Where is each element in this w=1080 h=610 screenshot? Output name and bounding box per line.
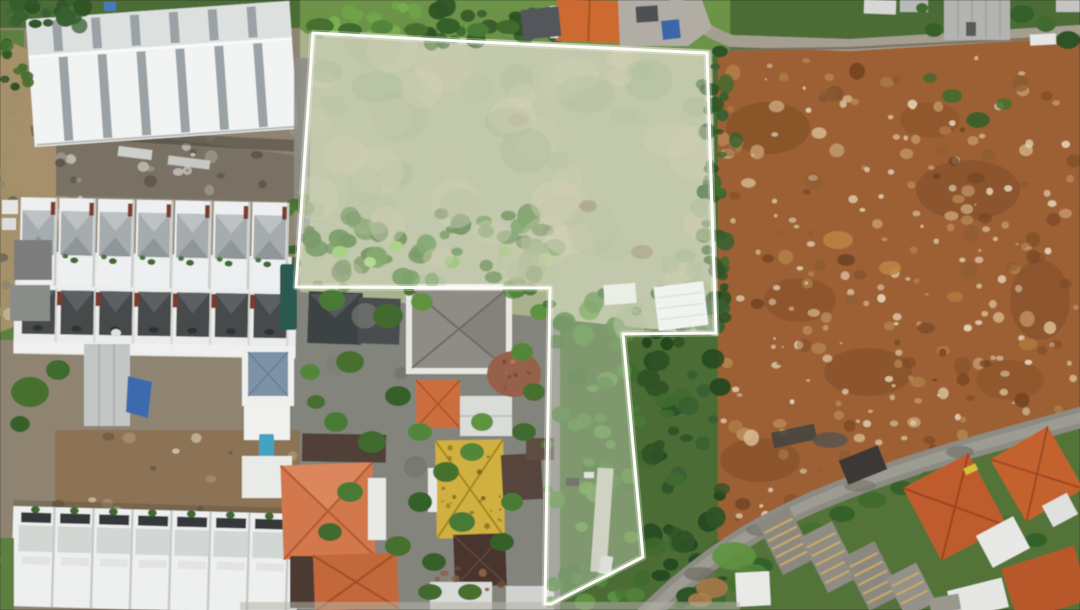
- yellow-roof-speckle: [446, 503, 451, 508]
- dirt-texture-pale: [1018, 71, 1025, 75]
- dirt-texture-pale: [751, 154, 754, 157]
- yellow-roof-speckle: [499, 495, 501, 497]
- trees-strip: [625, 588, 645, 601]
- townhouse-row-bottom: [96, 527, 131, 554]
- village-trees: [358, 431, 386, 453]
- grass-blobs-north: [410, 8, 421, 19]
- dirt-texture-pale: [782, 346, 784, 348]
- dirt-texture-dark: [902, 357, 916, 368]
- trees-east-of-parcel: [720, 283, 729, 291]
- dirt-texture-dark: [1026, 232, 1040, 248]
- dirt-texture-light: [803, 326, 813, 335]
- satellite-dish: [111, 329, 121, 337]
- lane-texture: [404, 456, 427, 478]
- construction-debris: [251, 151, 263, 159]
- townhouse-row-bottom: [174, 530, 209, 557]
- village-trees: [512, 423, 536, 441]
- dirt-texture-dark: [933, 173, 940, 179]
- dirt-texture-pale: [1062, 141, 1070, 148]
- yellow-roof-speckle: [490, 510, 492, 512]
- village-trees: [418, 584, 442, 600]
- dirt-texture-dark: [1006, 261, 1018, 271]
- yard-debris: [229, 451, 233, 454]
- townhouse-row-bottom: [100, 558, 128, 567]
- dirt-texture-dark: [1059, 279, 1071, 289]
- townhouse-row-bottom: [138, 516, 168, 527]
- dirt-texture-dark: [982, 149, 996, 160]
- dirt-texture-light: [960, 417, 966, 423]
- courtyard-texture: [503, 386, 506, 388]
- dirt-texture-light: [914, 278, 919, 283]
- dirt-weed-tufts: [718, 74, 734, 94]
- dirt-texture-light: [872, 219, 883, 228]
- rust-debris: [497, 581, 505, 588]
- construction-debris: [144, 175, 157, 187]
- dirt-texture-light: [823, 325, 829, 331]
- dirt-texture-dark: [959, 127, 965, 132]
- dirt-texture-light: [993, 237, 998, 241]
- dirt-texture-dark: [932, 378, 937, 381]
- gray-roof-west: [10, 285, 50, 321]
- townhouse-row-lower: [57, 291, 62, 305]
- dirt-texture-dark: [892, 75, 902, 84]
- dirt-texture-pale: [730, 218, 735, 224]
- dirt-texture-dark: [778, 230, 784, 236]
- dirt-texture-pale: [1044, 190, 1051, 197]
- dirt-texture-pale: [906, 277, 911, 280]
- rust-debris: [485, 588, 490, 591]
- dirt-texture-light: [894, 360, 902, 369]
- trees-southeast-block: [663, 558, 678, 570]
- mud-pools: [947, 292, 963, 302]
- dirt-texture-light: [741, 178, 756, 187]
- townhouse-row-bottom: [178, 561, 206, 570]
- dirt-texture-pale: [955, 414, 961, 420]
- townhouse-row-bottom: [61, 557, 89, 566]
- yellow-roof-speckle: [499, 509, 502, 511]
- yellow-roof-speckle: [441, 501, 443, 503]
- dirt-texture-pale: [996, 356, 1003, 361]
- yellow-roof-speckle: [447, 445, 452, 450]
- aerial-photo-stage: [0, 0, 1080, 610]
- dirt-texture-pale: [910, 106, 915, 110]
- left-trees: [10, 416, 30, 432]
- dirt-texture-dark: [949, 157, 960, 166]
- yellow-roof-speckle: [500, 520, 502, 522]
- dirt-texture-light: [914, 398, 922, 404]
- dirt-texture-light: [892, 384, 896, 387]
- townhouse-row-bottom: [21, 512, 51, 523]
- townhouse-row-upper-1: [58, 198, 97, 287]
- dirt-texture-pale: [964, 325, 972, 331]
- dirt-texture-light: [928, 165, 934, 170]
- dirt-texture-dark: [729, 191, 740, 199]
- townhouse-row-upper-4: [173, 200, 212, 289]
- dirt-texture-dark: [820, 88, 838, 102]
- dirt-weed-tufts: [729, 132, 743, 148]
- white-building-south: [735, 571, 771, 607]
- trees-north-of-parcel: [461, 10, 476, 22]
- townhouse-row-bottom: [99, 514, 129, 525]
- white-annex: [368, 478, 386, 540]
- yard-debris: [191, 433, 201, 443]
- dirt-texture-pale: [797, 266, 804, 270]
- small-shed-west: [2, 218, 16, 230]
- dirt-texture-dark: [939, 348, 947, 356]
- yellow-roof-speckle: [447, 456, 452, 461]
- photo-scene: [0, 0, 1080, 610]
- dirt-texture-pale: [807, 241, 815, 247]
- dirt-texture-light: [900, 149, 913, 159]
- dirt-texture-pale: [1067, 361, 1072, 366]
- dirt-texture-light: [802, 58, 810, 63]
- yard-debris: [102, 432, 114, 441]
- village-trees: [411, 293, 433, 311]
- dirt-texture-pale: [848, 195, 857, 203]
- dirt-texture-pale: [864, 167, 869, 172]
- dirt-texture-light: [1069, 375, 1076, 382]
- townhouse-row-upper: [282, 207, 287, 220]
- dirt-texture-pale: [856, 420, 860, 423]
- trees-southeast-block: [678, 397, 699, 416]
- village-trees: [408, 423, 432, 441]
- dirt-texture-pale: [868, 410, 873, 413]
- dirt-texture-pale: [885, 376, 893, 382]
- village-trees: [433, 462, 459, 482]
- village-trees: [422, 553, 446, 571]
- lane-texture: [394, 367, 408, 380]
- dirt-texture-light: [882, 238, 888, 242]
- dirt-texture-pale: [893, 313, 902, 320]
- trees-southeast-block: [673, 337, 684, 348]
- trees-southeast-block: [636, 369, 660, 388]
- small-roof-northeast: [1056, 0, 1080, 12]
- townhouse-row-upper: [166, 204, 171, 217]
- dirt-texture-dark: [757, 503, 761, 506]
- townhouse-row-lower: [134, 293, 139, 307]
- small-roof-north: [864, 0, 896, 15]
- debris-on-dirt: [812, 432, 848, 448]
- townhouse-row-bottom: [216, 518, 246, 529]
- trees-east-of-parcel: [716, 232, 735, 251]
- trees-southeast-block: [706, 507, 726, 529]
- townhouse-row-upper-5: [212, 201, 251, 290]
- dirt-texture-dark: [957, 373, 970, 386]
- dirt-texture-pale: [765, 79, 767, 81]
- construction-debris: [259, 180, 267, 188]
- dirt-texture-dark: [1015, 393, 1030, 408]
- construction-debris: [185, 169, 190, 173]
- townhouse-row-bottom: [252, 532, 287, 559]
- dirt-texture-dark: [1019, 181, 1029, 188]
- dirt-texture-dark: [1016, 240, 1027, 249]
- dirt-texture-light: [976, 284, 982, 289]
- trees-northwest-corner: [29, 19, 42, 28]
- hedge-north-boundary: [467, 23, 489, 37]
- dirt-texture-dark: [854, 270, 867, 280]
- dirt-texture-pale: [773, 337, 775, 339]
- dirt-texture-dark: [749, 480, 756, 485]
- rust-debris: [452, 575, 460, 582]
- dirt-texture-pale: [1015, 285, 1022, 292]
- dirt-texture-pale: [975, 257, 984, 263]
- dirt-texture-light: [728, 106, 734, 112]
- townhouse-row-bottom: [217, 562, 245, 571]
- dirt-texture-dark: [803, 189, 811, 194]
- dirt-texture-pale: [772, 199, 777, 204]
- dirt-texture-light: [808, 271, 814, 276]
- dirt-texture-pale: [974, 204, 976, 206]
- dirt-texture-light: [812, 127, 827, 138]
- yard-debris: [172, 448, 179, 453]
- dirt-texture-pale: [800, 469, 807, 474]
- dirt-texture-pale: [990, 356, 995, 360]
- trees-southeast-block: [697, 384, 711, 397]
- trees-southeast-block: [659, 409, 674, 418]
- trees-east-of-parcel: [712, 46, 728, 57]
- dirt-texture-pale: [721, 419, 727, 424]
- dirt-texture-dark: [924, 436, 936, 444]
- trees-southeast-block: [642, 443, 665, 465]
- southwest-grass: [0, 538, 14, 610]
- dirt-weed-tufts: [966, 112, 990, 128]
- dirt-texture-light: [778, 449, 788, 460]
- construction-debris: [138, 162, 149, 172]
- dirt-texture-pale: [998, 275, 1006, 283]
- dirt-texture-dark: [960, 263, 978, 280]
- dirt-texture-dark: [1041, 91, 1053, 101]
- trees-strip: [634, 570, 650, 587]
- mud-pools: [823, 231, 853, 249]
- dirt-texture-pale: [959, 258, 965, 262]
- townhouse-row-bottom: [135, 528, 170, 555]
- yard-debris: [123, 433, 136, 444]
- hedge-north-boundary: [371, 20, 393, 34]
- trees-southeast-block: [648, 350, 670, 371]
- dirt-texture-pale: [1025, 360, 1032, 365]
- trees-east-of-parcel: [710, 64, 720, 70]
- village-trees: [373, 304, 403, 328]
- white-vehicle-north: [1030, 33, 1057, 45]
- blue-tarp-small: [104, 2, 116, 11]
- dirt-texture-light: [811, 343, 826, 354]
- dirt-texture-dark: [978, 213, 992, 224]
- yard-debris: [88, 497, 96, 502]
- dirt-texture-light: [1020, 311, 1035, 327]
- dirt-texture-dark: [849, 63, 865, 80]
- trees-northwest-corner: [43, 19, 53, 27]
- dirt-texture-light: [934, 102, 944, 112]
- village-trees: [319, 289, 345, 311]
- dirt-texture-pale: [1048, 200, 1057, 207]
- dirt-texture-pale: [949, 120, 955, 126]
- dirt-texture-pale: [982, 226, 990, 232]
- trees-northwest-corner: [6, 9, 14, 15]
- village-trees: [460, 443, 484, 461]
- construction-debris: [77, 178, 82, 183]
- village-trees: [324, 412, 348, 432]
- dirt-texture-pale: [768, 488, 773, 493]
- trees-east-of-parcel: [717, 152, 727, 158]
- dirt-texture-pale: [771, 132, 778, 136]
- hedge-along-road: [858, 492, 886, 508]
- dirt-texture-dark: [817, 470, 822, 474]
- trees-west-edge: [0, 76, 10, 83]
- construction-debris: [173, 168, 184, 176]
- dirt-texture-light: [779, 73, 789, 82]
- dirt-texture-pale: [732, 387, 739, 393]
- townhouse-row-bottom: [213, 531, 248, 558]
- trees-northeast: [925, 23, 943, 37]
- dark-brown-roof: [501, 453, 543, 501]
- village-trees: [458, 584, 482, 600]
- townhouse-row-upper: [19, 197, 289, 291]
- west-path-debris: [2, 281, 11, 290]
- townhouse-row-upper: [51, 202, 56, 215]
- dirt-texture-light: [1059, 209, 1072, 218]
- dirt-texture-light: [829, 144, 844, 158]
- dirt-weed-tufts: [923, 73, 937, 83]
- dirt-texture-light: [880, 77, 894, 87]
- construction-debris: [217, 173, 225, 179]
- trees-strip: [615, 587, 627, 599]
- dirt-texture-pale: [790, 399, 795, 404]
- courtyard-texture: [505, 371, 507, 373]
- courtyard-texture: [513, 373, 518, 378]
- dirt-texture-light: [890, 395, 895, 401]
- trees-east-of-parcel: [715, 129, 724, 135]
- trees-southeast-block: [680, 434, 693, 442]
- dirt-texture-pale: [949, 185, 957, 192]
- dirt-texture-pale: [888, 169, 894, 174]
- trees-northeast: [1036, 16, 1056, 32]
- dirt-texture-pale: [805, 281, 808, 284]
- village-trees: [449, 512, 475, 532]
- metal-shed: [84, 344, 130, 426]
- townhouse-row-upper-3: [135, 200, 174, 289]
- village-trees: [318, 523, 342, 541]
- village-trees: [337, 482, 363, 502]
- dirt-texture-light: [769, 101, 784, 112]
- trees-southeast-block: [651, 570, 670, 581]
- dirt-texture-pale: [841, 271, 850, 280]
- dirt-texture-pale: [863, 420, 871, 427]
- dirt-texture-pale: [767, 64, 773, 68]
- courtyard-texture: [505, 389, 507, 391]
- dirt-texture-dark: [734, 518, 740, 522]
- dirt-texture-light: [911, 135, 920, 144]
- trees-southeast-block: [708, 415, 718, 424]
- dirt-texture-pale: [1025, 139, 1033, 148]
- trees-southeast-block: [702, 349, 725, 369]
- rust-debris: [440, 570, 449, 576]
- dirt-texture-pale: [789, 218, 797, 223]
- dirt-texture-pale: [913, 211, 921, 217]
- dirt-texture-pale: [840, 342, 842, 344]
- yellow-roof-speckle: [484, 523, 490, 529]
- dirt-texture-dark: [735, 498, 751, 510]
- dirt-texture-dark: [1037, 346, 1047, 355]
- dirt-texture-dark: [966, 395, 975, 401]
- village-trees: [471, 413, 493, 431]
- dirt-texture-light: [895, 350, 902, 356]
- dirt-texture-light: [938, 388, 949, 400]
- dirt-texture-pale: [1000, 371, 1009, 377]
- dirt-texture-pale: [1045, 248, 1052, 255]
- townhouse-row-bottom: [22, 556, 50, 565]
- townhouse-row-bottom: [256, 563, 284, 572]
- dirt-texture-dark: [1031, 253, 1046, 264]
- dirt-texture-light: [1044, 322, 1056, 334]
- northeast-doorway: [966, 22, 976, 36]
- yellow-roof-speckle: [450, 502, 452, 503]
- construction-debris: [70, 176, 77, 183]
- dirt-texture-dark: [808, 230, 814, 235]
- trees-southeast-block: [714, 483, 730, 495]
- dirt-texture-pale: [878, 194, 883, 198]
- yellow-roof-speckle: [452, 495, 456, 499]
- trees-southeast-block: [710, 378, 731, 396]
- construction-debris: [55, 158, 65, 167]
- dirt-texture-pale: [840, 100, 847, 107]
- left-trees: [11, 377, 49, 407]
- dirt-texture-pale: [774, 214, 777, 217]
- trees-northeast: [1010, 5, 1034, 23]
- trees-southeast-block: [642, 337, 652, 348]
- dirt-weed-tufts: [942, 89, 962, 103]
- rust-debris: [454, 566, 461, 570]
- dirt-texture-pale: [806, 379, 810, 381]
- trees-southeast-block: [665, 472, 684, 486]
- dirt-texture-dark: [1050, 340, 1063, 348]
- dirt-texture-light: [910, 247, 917, 254]
- dirt-texture-light: [750, 145, 764, 159]
- dirt-texture-pale: [989, 300, 997, 308]
- dirt-texture-pale: [986, 188, 993, 195]
- dirt-texture-light: [854, 434, 865, 442]
- village-trees: [511, 343, 533, 361]
- townhouse-row-bottom: [255, 519, 285, 530]
- dirt-texture-light: [1052, 100, 1060, 105]
- courtyard-texture: [502, 360, 506, 365]
- village-trees: [307, 395, 325, 409]
- rust-debris: [479, 569, 487, 577]
- dirt-texture-pale: [877, 294, 885, 302]
- trees-northwest-corner: [41, 8, 52, 17]
- village-trees: [490, 533, 514, 551]
- courtyard-texture: [510, 360, 516, 364]
- gray-roof-north: [521, 6, 562, 40]
- dirt-texture-pale: [894, 322, 899, 325]
- trees-southeast-block: [655, 394, 676, 408]
- dirt-texture-light: [981, 311, 988, 317]
- dirt-texture-pale: [756, 249, 761, 254]
- trees-southeast-block: [695, 436, 710, 450]
- village-trees: [300, 364, 320, 380]
- dirt-texture-pale: [803, 87, 806, 90]
- villa-pool: [259, 434, 274, 458]
- dirt-texture-dark: [963, 225, 979, 242]
- dirt-texture-pale: [888, 115, 893, 119]
- trees-southeast-block: [687, 370, 698, 379]
- dirt-texture-dark: [967, 173, 984, 184]
- yellow-roof-speckle: [441, 487, 445, 491]
- aerial-drone-photo: [0, 0, 1080, 610]
- dirt-texture-pale: [1012, 402, 1014, 404]
- village-trees: [385, 386, 411, 406]
- dirt-texture-pale: [877, 284, 884, 290]
- dirt-texture-pale: [769, 299, 776, 306]
